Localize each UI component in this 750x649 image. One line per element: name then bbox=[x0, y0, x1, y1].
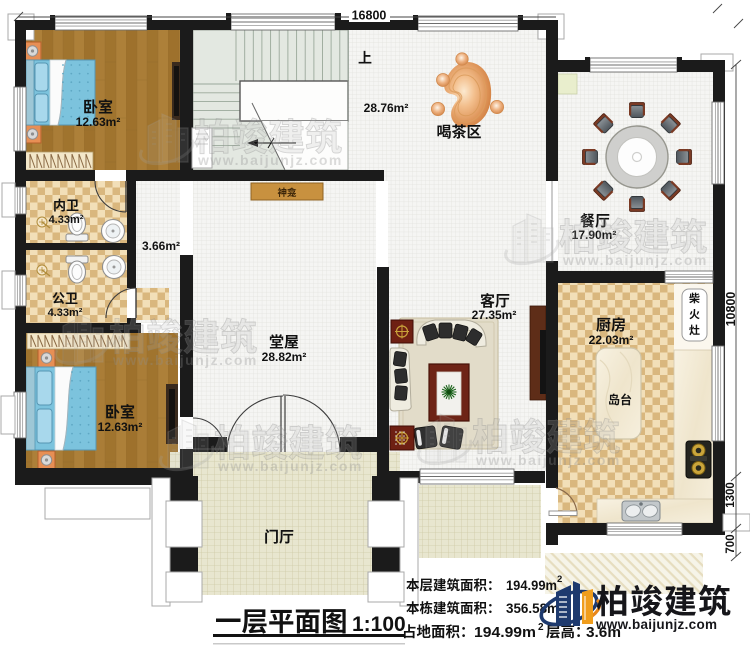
svg-text:12.63m²: 12.63m² bbox=[76, 115, 121, 129]
svg-text:www.baijunjz.com: www.baijunjz.com bbox=[197, 152, 343, 168]
svg-text:28.76m²: 28.76m² bbox=[364, 101, 409, 115]
svg-text:卧室: 卧室 bbox=[105, 401, 135, 422]
svg-text:www.baijunjz.com: www.baijunjz.com bbox=[562, 252, 708, 268]
svg-text:2: 2 bbox=[557, 574, 562, 585]
svg-text:4.33m²: 4.33m² bbox=[49, 214, 84, 226]
svg-text:194.99m: 194.99m bbox=[506, 577, 557, 593]
svg-text:公卫: 公卫 bbox=[52, 288, 78, 307]
svg-text:卧室: 卧室 bbox=[83, 96, 113, 117]
svg-text:喝茶区: 喝茶区 bbox=[436, 121, 481, 142]
svg-text:1:100: 1:100 bbox=[352, 613, 406, 636]
svg-text:27.35m²: 27.35m² bbox=[472, 308, 517, 322]
svg-text:内卫: 内卫 bbox=[53, 195, 79, 214]
svg-text:www.baijunjz.com: www.baijunjz.com bbox=[112, 352, 258, 368]
svg-text:堂屋: 堂屋 bbox=[269, 331, 299, 352]
svg-text:2: 2 bbox=[538, 622, 544, 633]
svg-text:1300: 1300 bbox=[725, 482, 737, 508]
svg-text:www.baijunjz.com: www.baijunjz.com bbox=[217, 458, 363, 474]
svg-text:灶: 灶 bbox=[689, 322, 700, 338]
svg-text:3.66m²: 3.66m² bbox=[142, 239, 180, 253]
svg-text:厨房: 厨房 bbox=[596, 314, 626, 335]
svg-text:本层建筑面积：: 本层建筑面积： bbox=[406, 574, 501, 594]
svg-text:700: 700 bbox=[725, 534, 737, 553]
svg-text:神龛: 神龛 bbox=[277, 185, 297, 199]
svg-text:本栋建筑面积：: 本栋建筑面积： bbox=[406, 597, 501, 617]
svg-text:柏竣建筑: 柏竣建筑 bbox=[596, 575, 732, 623]
svg-text:门厅: 门厅 bbox=[264, 526, 294, 547]
svg-text:28.82m²: 28.82m² bbox=[262, 350, 307, 364]
svg-text:12.63m²: 12.63m² bbox=[98, 420, 143, 434]
svg-text:www.baijunjz.com: www.baijunjz.com bbox=[595, 617, 717, 632]
svg-text:22.03m²: 22.03m² bbox=[589, 333, 634, 347]
svg-text:16800: 16800 bbox=[352, 9, 387, 23]
svg-text:柴: 柴 bbox=[689, 290, 700, 306]
svg-text:10800: 10800 bbox=[724, 292, 738, 327]
svg-text:岛台: 岛台 bbox=[608, 391, 632, 408]
svg-text:占地面积：: 占地面积： bbox=[402, 621, 475, 642]
svg-text:一层平面图: 一层平面图 bbox=[215, 600, 348, 639]
svg-text:www.baijunjz.com: www.baijunjz.com bbox=[475, 452, 621, 468]
svg-text:194.99m: 194.99m bbox=[474, 625, 536, 641]
svg-text:上: 上 bbox=[358, 48, 372, 68]
svg-text:火: 火 bbox=[689, 306, 700, 322]
